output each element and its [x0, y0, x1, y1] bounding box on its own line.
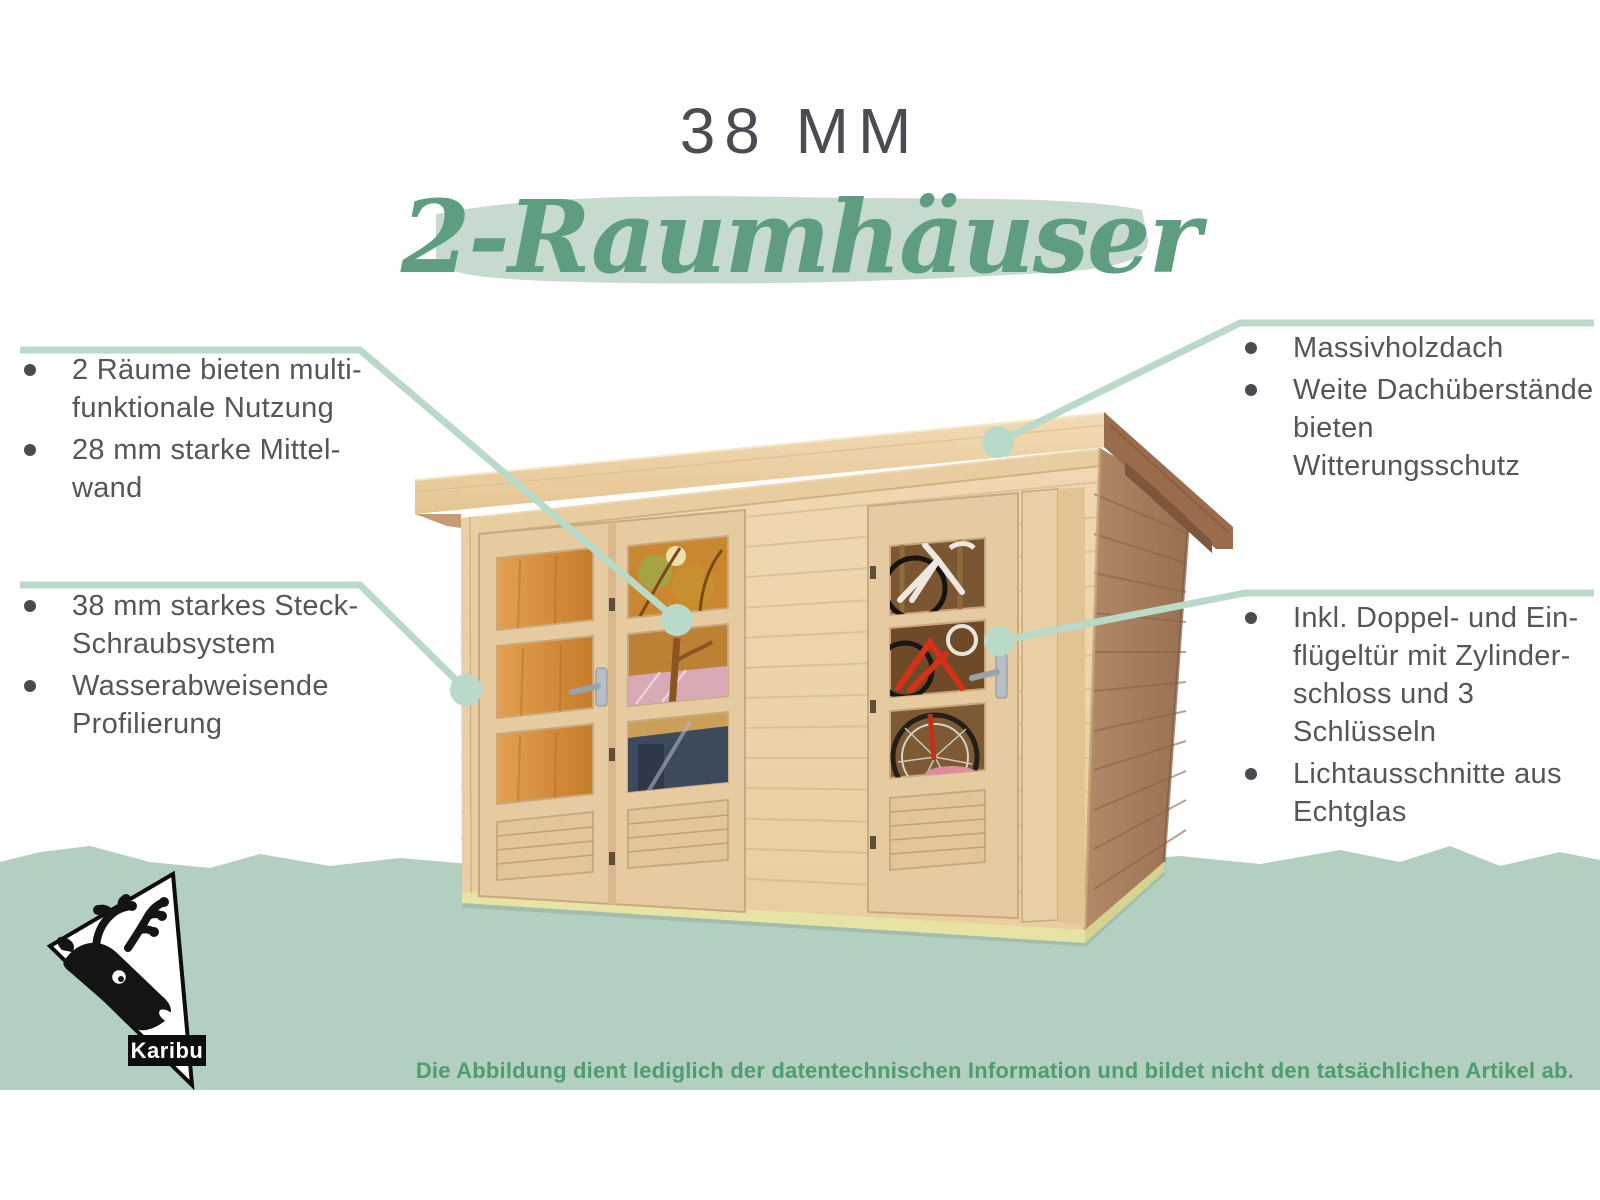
infographic-page: 38 MM 2-Raumhäuser 2 Räume bieten multi-…	[0, 0, 1600, 1200]
shed-illustration	[415, 412, 1233, 944]
bullet-dot	[1245, 768, 1257, 780]
note-item: Massivholzdach	[1243, 329, 1595, 367]
bullet-dot	[1245, 384, 1257, 396]
note-block-bottom-left: 38 mm starkes Steck- Schraubsystem Wasse…	[22, 587, 367, 747]
note-item: Wasserabweisende Profilierung	[22, 667, 367, 743]
product-line-headline: 2-Raumhäuser	[0, 178, 1600, 296]
karibu-logo-label: Karibu	[128, 1035, 206, 1066]
size-headline: 38 MM	[0, 94, 1600, 168]
bullet-dot	[24, 444, 36, 456]
dot-window	[661, 604, 693, 636]
note-block-top-right: Massivholzdach Weite Dachüberstände biet…	[1243, 329, 1595, 489]
note-item: Weite Dachüberstände bieten Witterungssc…	[1243, 371, 1595, 485]
note-block-top-left: 2 Räume bieten multi- funktionale Nutzun…	[22, 351, 367, 511]
disclaimer-text: Die Abbildung dient lediglich der datent…	[416, 1058, 1574, 1084]
single-door	[868, 487, 1085, 926]
bullet-dot	[24, 364, 36, 376]
bullet-dot	[1245, 612, 1257, 624]
note-item: 2 Räume bieten multi- funktionale Nutzun…	[22, 351, 367, 427]
note-item: 28 mm starke Mittel- wand	[22, 431, 367, 507]
note-block-bottom-right: Inkl. Doppel- und Ein- flügeltür mit Zyl…	[1243, 599, 1595, 835]
double-door	[479, 510, 745, 912]
dot-door	[984, 626, 1014, 656]
bullet-dot	[24, 680, 36, 692]
note-item: 38 mm starkes Steck- Schraubsystem	[22, 587, 367, 663]
note-item: Lichtausschnitte aus Echtglas	[1243, 755, 1595, 831]
bullet-dot	[24, 600, 36, 612]
dot-roof	[982, 426, 1014, 458]
bullet-dot	[1245, 342, 1257, 354]
dot-wall	[450, 674, 482, 706]
note-item: Inkl. Doppel- und Ein- flügeltür mit Zyl…	[1243, 599, 1595, 751]
